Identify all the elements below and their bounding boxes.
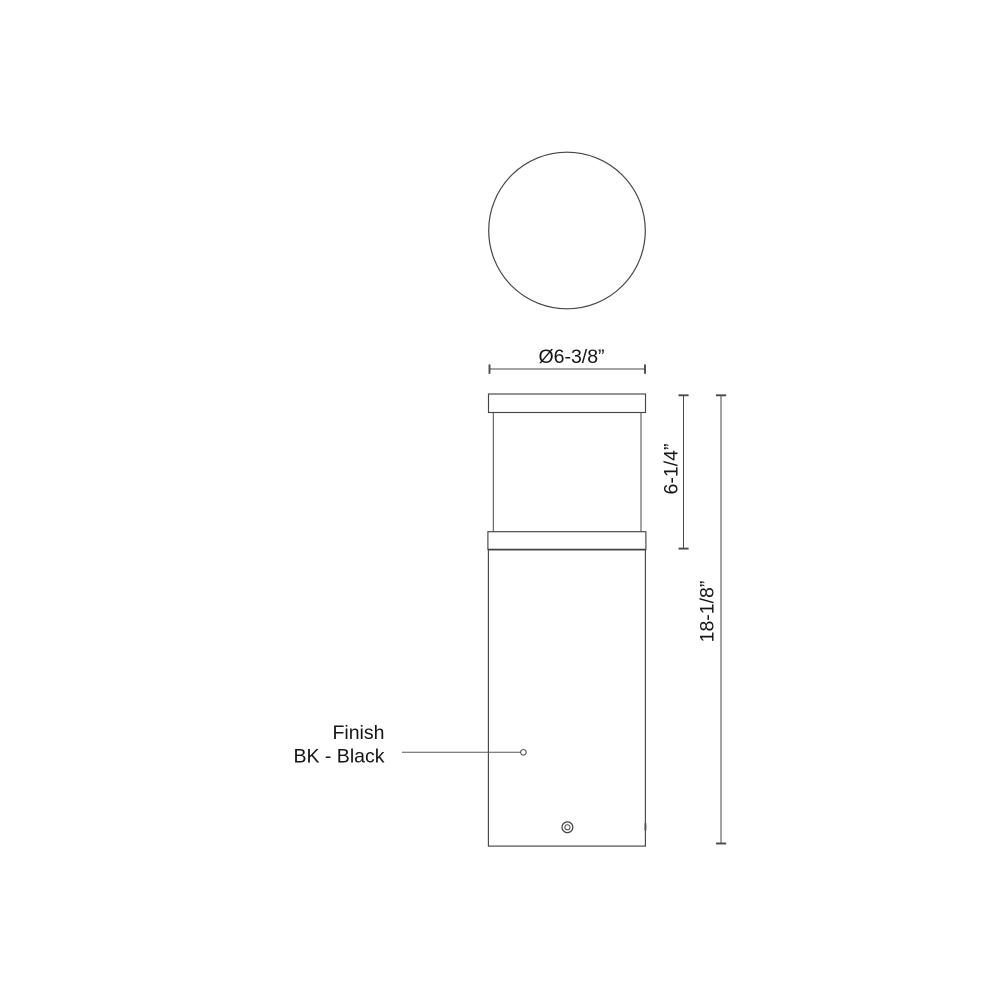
svg-text:Finish: Finish	[332, 722, 384, 744]
svg-text:6-1/4”: 6-1/4”	[661, 444, 683, 495]
svg-text:18-1/8”: 18-1/8”	[696, 581, 718, 643]
svg-text:Ø6-3/8”: Ø6-3/8”	[538, 346, 604, 368]
svg-text:BK - Black: BK - Black	[293, 746, 384, 768]
